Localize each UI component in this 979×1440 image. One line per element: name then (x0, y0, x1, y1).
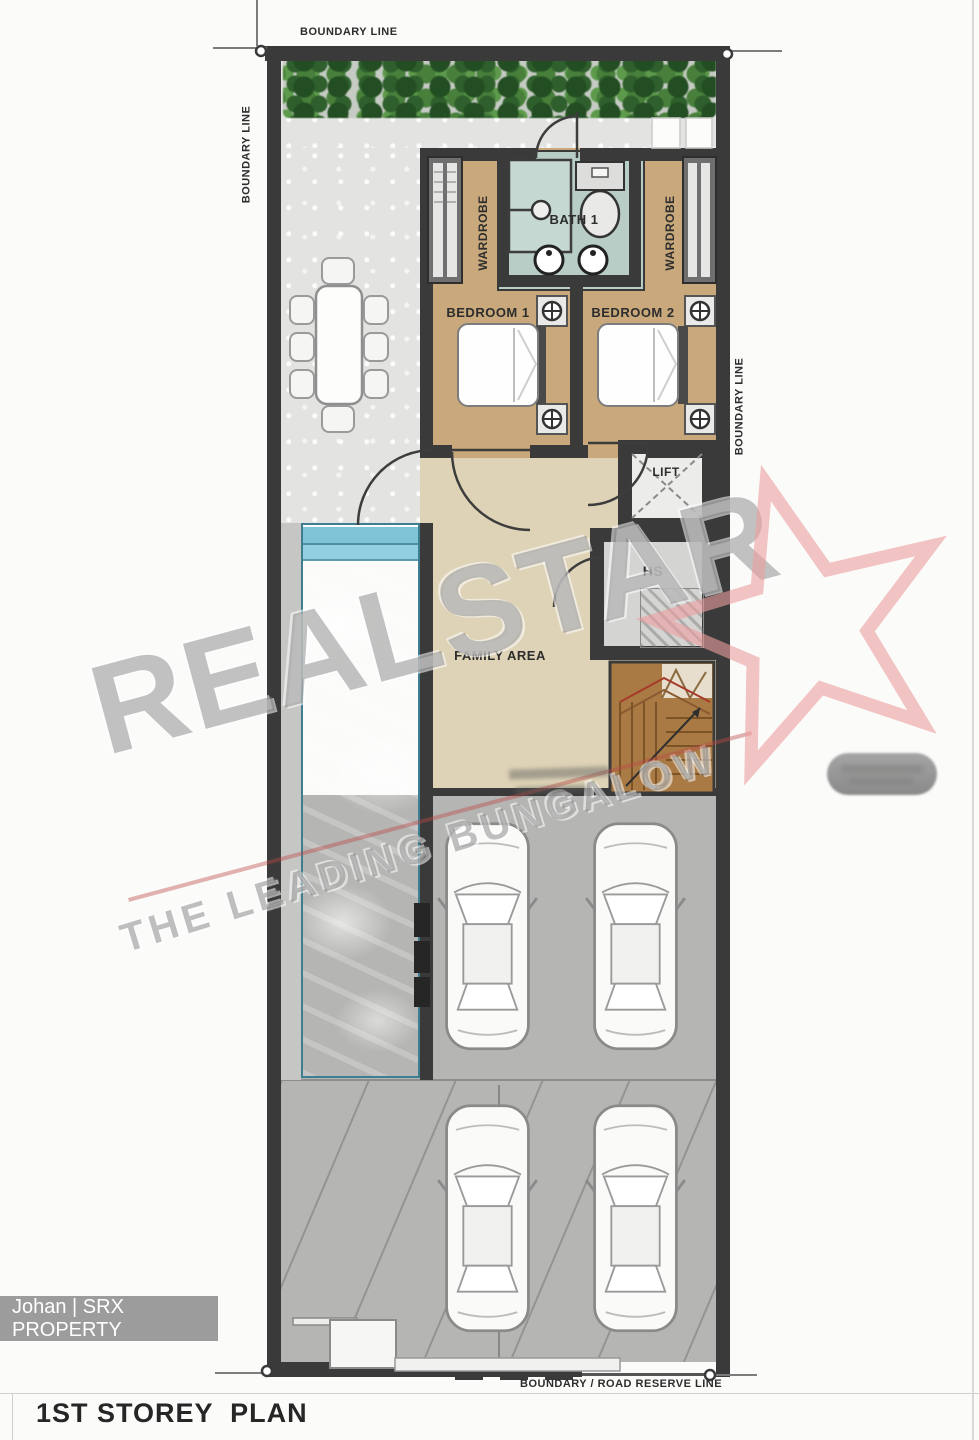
page-border-right (972, 0, 974, 1440)
illegible-stamp-text (505, 762, 617, 802)
page-title: 1ST STOREY PLAN (36, 1398, 308, 1429)
watermark-star-icon (0, 0, 979, 1440)
floor-plan-page: BOUNDARY LINE BOUNDARY LINE BOUNDARY LIN… (0, 0, 979, 1440)
agent-badge-text: Johan | SRX PROPERTY (12, 1296, 218, 1342)
page-rule-bottom (0, 1393, 979, 1394)
blurred-stamp-pill (827, 753, 937, 795)
page-border-left-cell (12, 1393, 13, 1440)
agent-badge: Johan | SRX PROPERTY (0, 1296, 218, 1341)
